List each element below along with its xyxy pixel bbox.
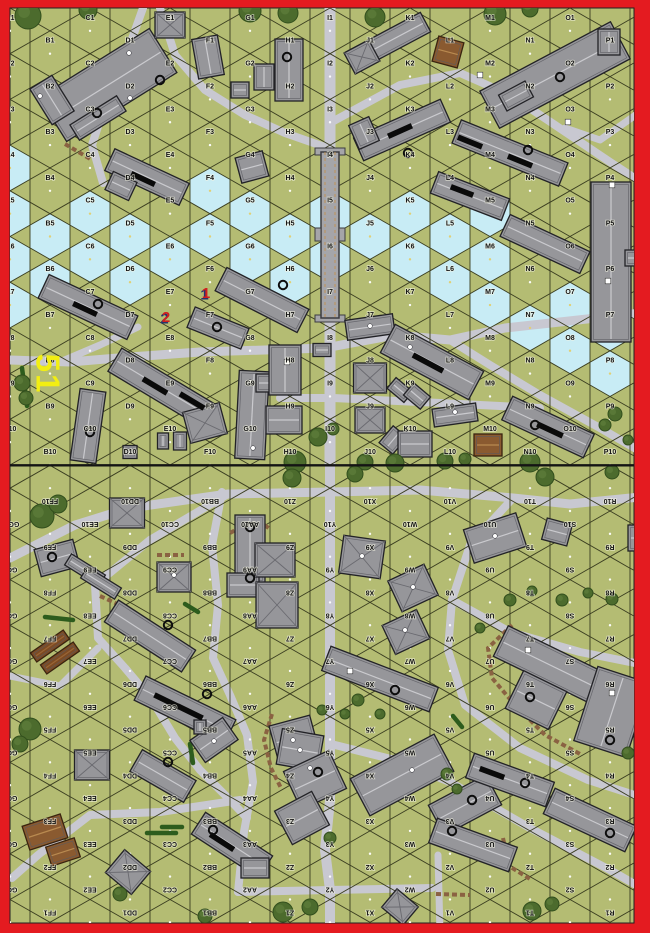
hex-label-EE5: EE5 <box>83 749 96 756</box>
hex-label-CC4: CC4 <box>163 794 177 801</box>
hex-label-P2: P2 <box>606 83 615 90</box>
multistory-dot <box>493 534 498 539</box>
annotation-1: 1 <box>202 285 210 302</box>
hex-label-T3: T3 <box>526 817 534 824</box>
building <box>275 39 303 101</box>
hex-label-AA9: AA9 <box>243 566 257 573</box>
hex-label-D7: D7 <box>126 312 135 319</box>
hex-label-Z2: Z2 <box>286 863 294 870</box>
hex-label-G9: G9 <box>245 380 254 387</box>
factory-dot <box>525 647 531 653</box>
hex-label-X9: X9 <box>366 543 375 550</box>
hex-label-F1: F1 <box>206 38 214 45</box>
hex-label-G3: G3 <box>245 106 254 113</box>
hex-label-FF2: FF2 <box>44 863 57 870</box>
hex-label-V6: V6 <box>446 680 455 687</box>
hex-label-E1: E1 <box>166 15 175 22</box>
hex-label-E3: E3 <box>166 106 175 113</box>
hex-label-G4: G4 <box>245 152 254 159</box>
hex-label-F7: F7 <box>206 312 214 319</box>
hex-label-O10: O10 <box>563 426 576 433</box>
hex-label-FF1: FF1 <box>44 908 57 915</box>
hex-label-CC2: CC2 <box>163 886 177 893</box>
hex-label-I9: I9 <box>327 380 333 387</box>
hex-label-CC3: CC3 <box>163 840 177 847</box>
hex-label-CC7: CC7 <box>163 657 177 664</box>
hex-label-X5: X5 <box>366 726 375 733</box>
hex-label-B4: B4 <box>46 175 55 182</box>
hex-label-N3: N3 <box>526 129 535 136</box>
multistory-dot <box>291 738 296 743</box>
hex-label-N5: N5 <box>526 221 535 228</box>
factory-dot <box>609 182 615 188</box>
hex-label-U4: U4 <box>485 794 494 801</box>
hex-label-Z5: Z5 <box>286 726 294 733</box>
multistory-dot <box>128 96 133 101</box>
hex-label-X7: X7 <box>366 634 375 641</box>
hex-label-T2: T2 <box>526 863 534 870</box>
hex-label-FF5: FF5 <box>44 726 57 733</box>
hex-label-N1: N1 <box>526 38 535 45</box>
hex-label-EE9: EE9 <box>83 566 96 573</box>
hex-label-I6: I6 <box>327 243 333 250</box>
building <box>174 432 187 450</box>
hex-label-AA5: AA5 <box>243 749 257 756</box>
hex-label-B9: B9 <box>46 403 55 410</box>
hex-label-O5: O5 <box>565 198 574 205</box>
hex-label-FF8: FF8 <box>44 589 57 596</box>
hex-label-U2: U2 <box>485 886 494 893</box>
hex-label-W7: W7 <box>405 657 416 664</box>
annotation-2: 2 <box>162 309 170 326</box>
hex-label-L7: L7 <box>446 312 454 319</box>
hex-label-U9: U9 <box>485 566 494 573</box>
hex-label-U6: U6 <box>485 703 494 710</box>
hex-label-DD3: DD3 <box>123 817 137 824</box>
hex-label-V1: V1 <box>446 908 455 915</box>
multistory-dot <box>308 766 313 771</box>
hex-label-X3: X3 <box>366 817 375 824</box>
hex-label-E7: E7 <box>166 289 175 296</box>
hex-label-P10: P10 <box>604 449 617 456</box>
hex-label-R9: R9 <box>605 543 614 550</box>
hex-label-K5: K5 <box>406 198 415 205</box>
hex-label-O4: O4 <box>565 152 574 159</box>
building <box>266 406 302 434</box>
hex-label-BB8: BB8 <box>203 589 217 596</box>
hex-label-N4: N4 <box>526 175 535 182</box>
hex-label-T5: T5 <box>526 726 534 733</box>
hex-label-B2: B2 <box>46 83 55 90</box>
building <box>313 344 331 357</box>
hex-label-D5: D5 <box>126 221 135 228</box>
hex-label-Y5: Y5 <box>326 749 335 756</box>
hex-label-E8: E8 <box>166 335 175 342</box>
hex-label-FF4: FF4 <box>44 771 57 778</box>
hex-label-C4: C4 <box>86 152 95 159</box>
hex-label-DD6: DD6 <box>123 680 137 687</box>
hex-label-W10: W10 <box>403 520 418 527</box>
hex-label-O8: O8 <box>565 335 574 342</box>
hex-label-K10: K10 <box>404 426 417 433</box>
hex-label-L5: L5 <box>446 221 454 228</box>
multistory-dot <box>408 345 413 350</box>
hex-label-G1: G1 <box>245 15 254 22</box>
multistory-dot <box>298 748 303 753</box>
hex-label-F4: F4 <box>206 175 214 182</box>
hex-label-DD2: DD2 <box>123 863 137 870</box>
hex-label-V2: V2 <box>446 863 455 870</box>
hex-label-G6: G6 <box>245 243 254 250</box>
hex-label-T10: T10 <box>524 497 536 504</box>
hex-label-AA8: AA8 <box>243 611 257 618</box>
hex-label-FF9: FF9 <box>44 543 57 550</box>
hex-label-V10: V10 <box>444 497 457 504</box>
hex-label-F10: F10 <box>204 449 216 456</box>
hex-label-L8: L8 <box>446 358 454 365</box>
hex-label-E5: E5 <box>166 198 175 205</box>
hex-label-O7: O7 <box>565 289 574 296</box>
hex-label-Z7: Z7 <box>286 634 294 641</box>
hex-label-G7: G7 <box>245 289 254 296</box>
hex-label-R5: R5 <box>605 726 614 733</box>
hex-label-K2: K2 <box>406 61 415 68</box>
hex-label-BB3: BB3 <box>203 817 217 824</box>
board-number-label: 51 <box>30 354 67 395</box>
hex-label-AA7: AA7 <box>243 657 257 664</box>
hex-label-D8: D8 <box>126 358 135 365</box>
hex-label-T7: T7 <box>526 634 534 641</box>
hex-label-F5: F5 <box>206 221 214 228</box>
hex-label-L10: L10 <box>444 449 456 456</box>
hex-label-G10: G10 <box>243 426 256 433</box>
hex-label-AA10: AA10 <box>241 520 259 527</box>
hex-label-BB10: BB10 <box>201 497 219 504</box>
hex-label-D10: D10 <box>124 449 137 456</box>
factory-dot <box>477 72 483 78</box>
hex-label-CC8: CC8 <box>163 611 177 618</box>
hex-label-DD1: DD1 <box>123 908 137 915</box>
multistory-dot <box>403 628 408 633</box>
map-frame: A1A2A3A4A5A6A7A8A9A10B1B2B3B4B5B6B7B8B9B… <box>0 0 650 933</box>
hex-label-Z9: Z9 <box>286 543 294 550</box>
hex-label-W4: W4 <box>405 794 416 801</box>
hex-label-DD5: DD5 <box>123 726 137 733</box>
hex-label-H9: H9 <box>286 403 295 410</box>
hex-label-T6: T6 <box>526 680 534 687</box>
hex-label-B5: B5 <box>46 221 55 228</box>
hex-label-S8: S8 <box>566 611 575 618</box>
hex-label-M10: M10 <box>483 426 497 433</box>
hex-label-H2: H2 <box>286 83 295 90</box>
building <box>474 434 502 456</box>
hex-label-P8: P8 <box>606 358 615 365</box>
hex-label-J9: J9 <box>366 403 374 410</box>
hex-label-Z3: Z3 <box>286 817 294 824</box>
hex-label-EE7: EE7 <box>83 657 96 664</box>
hex-label-DD8: DD8 <box>123 589 137 596</box>
hex-label-EE8: EE8 <box>83 611 96 618</box>
hex-label-P5: P5 <box>606 221 615 228</box>
hex-label-FF6: FF6 <box>44 680 57 687</box>
hex-label-P7: P7 <box>606 312 615 319</box>
multistory-dot <box>410 768 415 773</box>
hex-label-W2: W2 <box>405 886 416 893</box>
hex-label-J7: J7 <box>366 312 374 319</box>
hex-label-BB6: BB6 <box>203 680 217 687</box>
hex-label-J5: J5 <box>366 221 374 228</box>
hex-label-P9: P9 <box>606 403 615 410</box>
hex-label-N10: N10 <box>524 449 537 456</box>
hex-label-O9: O9 <box>565 380 574 387</box>
hex-label-U3: U3 <box>485 840 494 847</box>
hex-label-D4: D4 <box>126 175 135 182</box>
hex-label-CC6: CC6 <box>163 703 177 710</box>
hex-label-X10: X10 <box>364 497 377 504</box>
hex-label-C1: C1 <box>86 15 95 22</box>
hex-label-S7: S7 <box>566 657 575 664</box>
multistory-dot <box>251 446 256 451</box>
factory-dot <box>609 690 615 696</box>
hex-label-J6: J6 <box>366 266 374 273</box>
hex-label-BB5: BB5 <box>203 726 217 733</box>
hex-label-C8: C8 <box>86 335 95 342</box>
hex-label-M7: M7 <box>485 289 495 296</box>
hex-label-H6: H6 <box>286 266 295 273</box>
hex-label-P1: P1 <box>606 38 615 45</box>
hex-label-L3: L3 <box>446 129 454 136</box>
hex-label-E10: E10 <box>164 426 177 433</box>
hex-label-J2: J2 <box>366 83 374 90</box>
hex-label-O2: O2 <box>565 61 574 68</box>
hex-label-N2: N2 <box>526 83 535 90</box>
multistory-dot <box>453 410 458 415</box>
hex-label-K7: K7 <box>406 289 415 296</box>
hex-label-E2: E2 <box>166 61 175 68</box>
hex-label-Y9: Y9 <box>326 566 335 573</box>
hex-label-I7: I7 <box>327 289 333 296</box>
hex-label-Y6: Y6 <box>326 703 335 710</box>
hex-label-X6: X6 <box>366 680 375 687</box>
hex-label-C2: C2 <box>86 61 95 68</box>
hex-label-K8: K8 <box>406 335 415 342</box>
hex-label-P4: P4 <box>606 175 615 182</box>
building <box>254 64 274 90</box>
hex-label-DD10: DD10 <box>121 497 139 504</box>
hex-label-W6: W6 <box>405 703 416 710</box>
factory-dot <box>565 119 571 125</box>
hex-label-S10: S10 <box>564 520 577 527</box>
hex-label-CC10: CC10 <box>161 520 179 527</box>
hex-label-I10: I10 <box>325 426 335 433</box>
hex-wargame-map[interactable]: A1A2A3A4A5A6A7A8A9A10B1B2B3B4B5B6B7B8B9B… <box>0 0 650 933</box>
hex-label-FF3: FF3 <box>44 817 57 824</box>
hex-label-Z10: Z10 <box>284 497 296 504</box>
building <box>354 363 387 393</box>
hex-label-H3: H3 <box>286 129 295 136</box>
hex-label-AA2: AA2 <box>243 886 257 893</box>
hex-label-CC9: CC9 <box>163 566 177 573</box>
hex-label-Y8: Y8 <box>326 611 335 618</box>
hex-label-BB2: BB2 <box>203 863 217 870</box>
hex-label-O3: O3 <box>565 106 574 113</box>
hex-label-O1: O1 <box>565 15 574 22</box>
hex-label-V3: V3 <box>446 817 455 824</box>
hex-label-C9: C9 <box>86 380 95 387</box>
hex-label-H7: H7 <box>286 312 295 319</box>
hex-label-F9: F9 <box>206 403 214 410</box>
hex-label-Y2: Y2 <box>326 886 335 893</box>
hex-label-I1: I1 <box>327 15 333 22</box>
multistory-dot <box>212 739 217 744</box>
hex-label-D2: D2 <box>126 83 135 90</box>
hex-label-U5: U5 <box>485 749 494 756</box>
hex-label-DD4: DD4 <box>123 771 137 778</box>
hex-label-X1: X1 <box>366 908 375 915</box>
hex-label-S3: S3 <box>566 840 575 847</box>
hex-label-D9: D9 <box>126 403 135 410</box>
hex-label-J10: J10 <box>364 449 376 456</box>
hex-label-Z6: Z6 <box>286 680 294 687</box>
hex-label-S6: S6 <box>566 703 575 710</box>
multistory-dot <box>368 324 373 329</box>
hex-label-F3: F3 <box>206 129 214 136</box>
hex-label-M6: M6 <box>485 243 495 250</box>
hex-label-U10: U10 <box>483 520 496 527</box>
hex-label-U7: U7 <box>485 657 494 664</box>
hex-label-Z8: Z8 <box>286 589 294 596</box>
hex-label-E6: E6 <box>166 243 175 250</box>
hex-label-B7: B7 <box>46 312 55 319</box>
hex-label-H4: H4 <box>286 175 295 182</box>
hex-label-D3: D3 <box>126 129 135 136</box>
hex-label-E9: E9 <box>166 380 175 387</box>
hex-label-EE10: EE10 <box>81 520 98 527</box>
hex-label-D6: D6 <box>126 266 135 273</box>
factory-dot <box>347 668 353 674</box>
hex-label-M5: M5 <box>485 198 495 205</box>
building <box>158 433 169 449</box>
hex-label-K3: K3 <box>406 106 415 113</box>
hex-label-R10: R10 <box>603 497 616 504</box>
hex-label-G2: G2 <box>245 61 254 68</box>
hex-label-O6: O6 <box>565 243 574 250</box>
hex-label-T1: T1 <box>526 908 534 915</box>
hex-label-Y3: Y3 <box>326 840 335 847</box>
hex-label-EE3: EE3 <box>83 840 96 847</box>
hex-label-U8: U8 <box>485 611 494 618</box>
building <box>355 407 385 433</box>
hex-label-F6: F6 <box>206 266 214 273</box>
hex-label-D1: D1 <box>126 38 135 45</box>
hex-label-I3: I3 <box>327 106 333 113</box>
hex-label-BB1: BB1 <box>203 908 217 915</box>
hex-label-AA4: AA4 <box>243 794 257 801</box>
hex-label-X8: X8 <box>366 589 375 596</box>
hex-label-F2: F2 <box>206 83 214 90</box>
hex-label-CC5: CC5 <box>163 749 177 756</box>
hex-label-L4: L4 <box>446 175 454 182</box>
hex-label-R4: R4 <box>605 771 614 778</box>
hex-label-B10: B10 <box>44 449 57 456</box>
hex-label-X4: X4 <box>366 771 375 778</box>
hex-label-AA3: AA3 <box>243 840 257 847</box>
hex-label-Z4: Z4 <box>286 771 294 778</box>
hex-label-S9: S9 <box>566 566 575 573</box>
hex-label-B6: B6 <box>46 266 55 273</box>
hex-label-W5: W5 <box>405 749 416 756</box>
hex-label-I2: I2 <box>327 61 333 68</box>
hex-label-J3: J3 <box>366 129 374 136</box>
hex-label-N9: N9 <box>526 403 535 410</box>
building <box>269 345 301 395</box>
hex-label-B3: B3 <box>46 129 55 136</box>
hex-label-L1: L1 <box>446 38 454 45</box>
hex-label-V5: V5 <box>446 726 455 733</box>
hex-label-I4: I4 <box>327 152 333 159</box>
hex-label-T9: T9 <box>526 543 534 550</box>
hex-label-M1: M1 <box>485 15 495 22</box>
hex-label-H8: H8 <box>286 358 295 365</box>
map-generated-layers: A1A2A3A4A5A6A7A8A9A10B1B2B3B4B5B6B7B8B9B… <box>0 0 650 933</box>
hex-label-H1: H1 <box>286 38 295 45</box>
hex-label-W8: W8 <box>405 611 416 618</box>
hex-label-W3: W3 <box>405 840 416 847</box>
hex-label-M2: M2 <box>485 61 495 68</box>
building <box>241 858 269 878</box>
hex-label-M8: M8 <box>485 335 495 342</box>
hex-label-T8: T8 <box>526 589 534 596</box>
hex-label-T4: T4 <box>526 771 534 778</box>
hex-label-N6: N6 <box>526 266 535 273</box>
hex-label-BB4: BB4 <box>203 771 217 778</box>
hex-label-R8: R8 <box>605 589 614 596</box>
hex-label-J4: J4 <box>366 175 374 182</box>
hex-label-F8: F8 <box>206 358 214 365</box>
hex-label-M9: M9 <box>485 380 495 387</box>
hex-label-DD9: DD9 <box>123 543 137 550</box>
hex-label-E4: E4 <box>166 152 175 159</box>
hex-label-BB7: BB7 <box>203 634 217 641</box>
hex-label-V4: V4 <box>446 771 455 778</box>
hex-label-R7: R7 <box>605 634 614 641</box>
factory-dot <box>605 278 611 284</box>
hex-label-C7: C7 <box>86 289 95 296</box>
hex-label-FF7: FF7 <box>44 634 57 641</box>
hex-label-K6: K6 <box>406 243 415 250</box>
hex-label-Z1: Z1 <box>286 908 294 915</box>
hex-label-I8: I8 <box>327 335 333 342</box>
hex-label-H10: H10 <box>284 449 297 456</box>
hex-label-BB9: BB9 <box>203 543 217 550</box>
hex-label-S4: S4 <box>566 794 575 801</box>
hex-label-K4: K4 <box>406 152 415 159</box>
hex-label-I5: I5 <box>327 198 333 205</box>
hex-label-S5: S5 <box>566 749 575 756</box>
hex-label-L9: L9 <box>446 403 454 410</box>
hex-label-J1: J1 <box>366 38 374 45</box>
multistory-dot <box>127 51 132 56</box>
hex-label-EE4: EE4 <box>83 794 96 801</box>
building <box>398 431 432 457</box>
hex-label-C10: C10 <box>84 426 97 433</box>
hex-label-EE2: EE2 <box>83 886 96 893</box>
hex-label-EE6: EE6 <box>83 703 96 710</box>
hex-label-V9: V9 <box>446 543 455 550</box>
hex-label-S2: S2 <box>566 886 575 893</box>
hex-label-Y4: Y4 <box>326 794 335 801</box>
hex-label-Y7: Y7 <box>326 657 335 664</box>
